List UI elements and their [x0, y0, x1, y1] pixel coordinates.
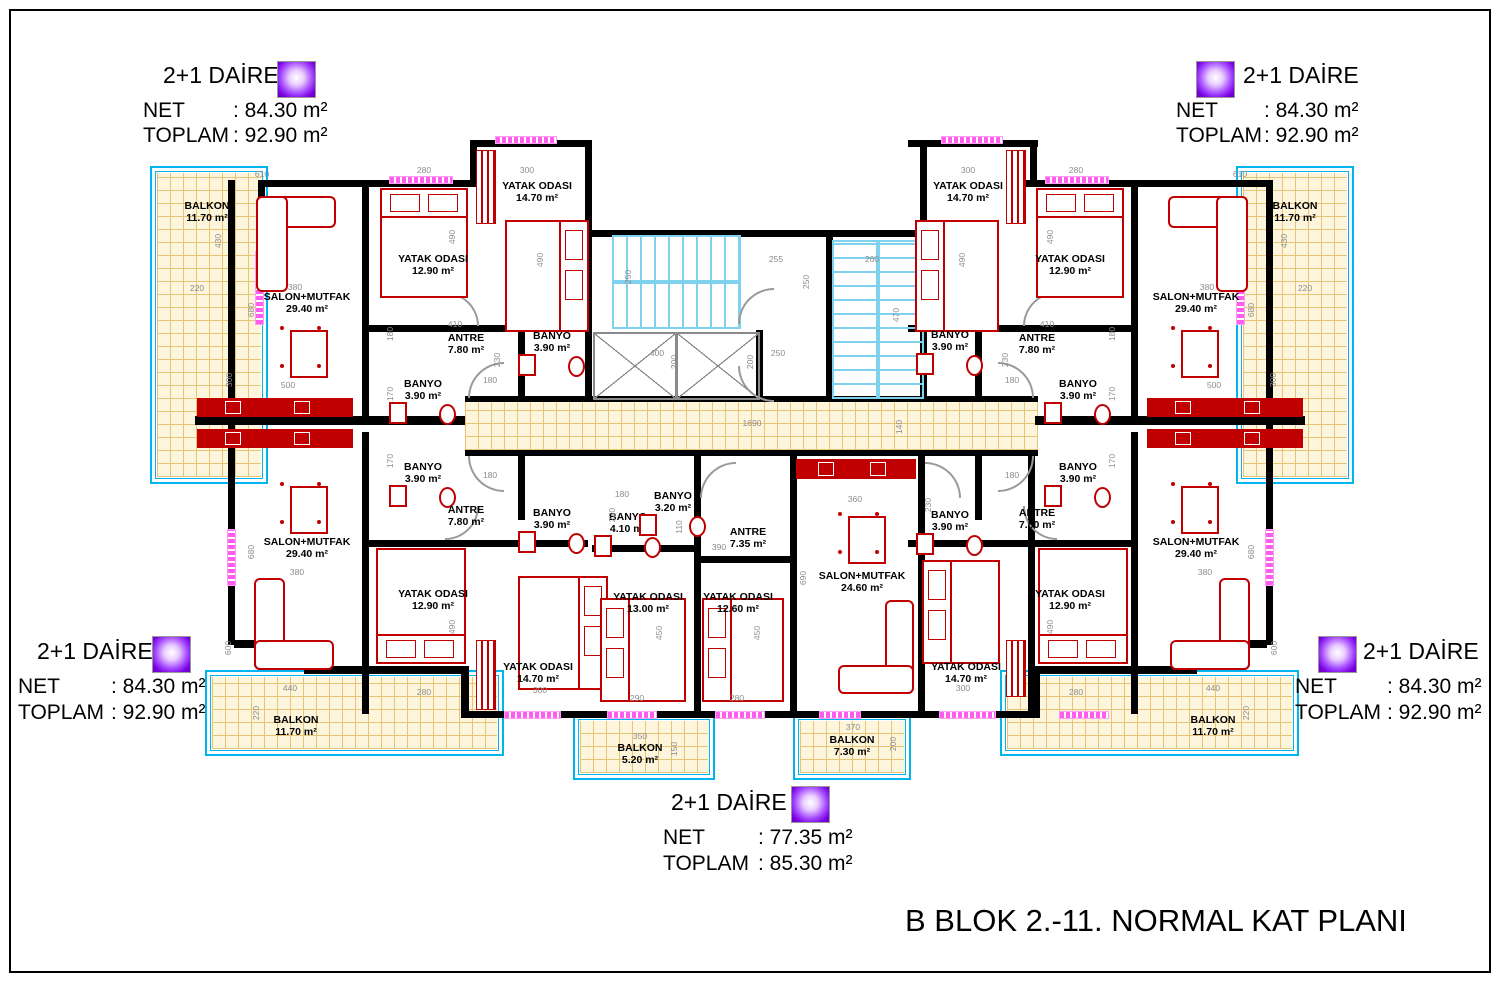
bed-line	[378, 634, 464, 636]
stove-icon	[225, 401, 241, 414]
dimension-label: 260	[865, 254, 879, 264]
wall	[1035, 416, 1305, 425]
room-name: YATAK ODASI	[1035, 253, 1105, 265]
room-name: BALKON	[1191, 714, 1236, 726]
sink-icon	[294, 432, 310, 445]
dimension-label: 680	[1246, 303, 1256, 317]
dimension-label: 230	[607, 508, 617, 522]
room-label: YATAK ODASI13.00 m²	[613, 591, 683, 615]
room-area: 7.35 m²	[730, 538, 766, 550]
room-name: YATAK ODASI	[503, 661, 573, 673]
apartment-type: 2+1 DAİRE	[163, 62, 279, 89]
room-area: 7.80 m²	[448, 516, 484, 528]
wall	[1131, 432, 1138, 714]
chair	[1208, 520, 1212, 524]
plan-title: B BLOK 2.-11. NORMAL KAT PLANI	[905, 903, 1410, 939]
room-name: ANTRE	[1019, 507, 1055, 519]
pillow	[1046, 194, 1076, 212]
dimension-label: 350	[633, 731, 647, 741]
dimension-label: 250	[623, 270, 633, 284]
dimension-label: 220	[251, 706, 261, 720]
room-area: 7.80 m²	[1019, 344, 1055, 356]
room-area: 3.90 m²	[1059, 390, 1097, 402]
room-label: BANYO3.20 m²	[654, 490, 692, 514]
window	[1060, 712, 1108, 718]
dimension-label: 180	[483, 375, 497, 385]
washbasin-icon	[1044, 485, 1062, 507]
net-label: NET	[1176, 99, 1264, 123]
kitchen-counter	[1147, 398, 1303, 417]
room-name: BANYO	[1059, 461, 1097, 473]
dimension-label: 180	[615, 489, 629, 499]
bed-line	[559, 222, 561, 330]
dimension-label: 230	[1000, 353, 1010, 367]
room-label: SALON+MUTFAK29.40 m²	[264, 291, 351, 315]
room-name: SALON+MUTFAK	[819, 570, 906, 582]
room-label: YATAK ODASI14.70 m²	[931, 661, 1001, 685]
room-label: ANTRE7.35 m²	[730, 526, 766, 550]
room-label: YATAK ODASI14.70 m²	[503, 661, 573, 685]
wall	[362, 540, 588, 547]
net-label: NET	[143, 99, 233, 123]
room-name: BANYO	[654, 490, 692, 502]
room-area: 12.90 m²	[1035, 265, 1105, 277]
bed-line	[1040, 634, 1126, 636]
stair-rail	[876, 242, 880, 397]
toilet-icon	[966, 535, 983, 556]
room-name: YATAK ODASI	[613, 591, 683, 603]
net-value: : 84.30 m²	[233, 99, 328, 123]
room-label: BALKON11.70 m²	[274, 714, 319, 738]
dimension-label: 200	[888, 737, 898, 751]
room-name: YATAK ODASI	[398, 253, 468, 265]
dimension-label: 610	[255, 169, 269, 179]
balcony-bottom-right	[1000, 670, 1299, 756]
wardrobe	[476, 640, 496, 710]
room-label: YATAK ODASI12.90 m²	[1035, 588, 1105, 612]
room-area: 11.70 m²	[1191, 726, 1236, 738]
stove-icon	[1175, 432, 1191, 445]
dimension-label: 170	[1107, 454, 1117, 468]
window	[1046, 177, 1108, 183]
stove-icon	[818, 462, 834, 476]
pillow	[386, 640, 416, 658]
room-area: 12.90 m²	[398, 600, 468, 612]
net-value: : 84.30 m²	[1264, 99, 1359, 123]
chair	[1171, 482, 1175, 486]
dimension-label: 470	[891, 308, 901, 322]
room-name: BANYO	[931, 329, 969, 341]
chair	[838, 550, 842, 554]
door-swing-arc	[700, 462, 736, 498]
pillow	[921, 230, 939, 260]
dimension-label: 500	[1207, 380, 1221, 390]
apartment-type-swatch-icon	[277, 61, 316, 98]
dimension-label: 390	[712, 542, 726, 552]
room-name: YATAK ODASI	[933, 180, 1003, 192]
room-name: BANYO	[404, 461, 442, 473]
dimension-label: 600	[223, 641, 233, 655]
dimension-label: 180	[1005, 375, 1019, 385]
sofa	[838, 665, 914, 694]
kitchen-counter	[197, 429, 353, 448]
pillow	[1084, 194, 1114, 212]
room-label: YATAK ODASI14.70 m²	[502, 180, 572, 204]
dimension-label: 220	[1298, 283, 1312, 293]
net-label: NET	[18, 675, 111, 699]
chair	[1208, 364, 1212, 368]
room-label: YATAK ODASI12.60 m²	[703, 591, 773, 615]
chair	[317, 520, 321, 524]
chair	[317, 364, 321, 368]
sofa	[256, 196, 288, 292]
sink-icon	[870, 462, 886, 476]
net-value: : 84.30 m²	[1387, 675, 1482, 699]
toplam-label: TOPLAM	[1295, 701, 1387, 725]
wardrobe	[1006, 640, 1026, 697]
kitchen-counter	[796, 459, 916, 479]
dimension-label: 180	[1005, 470, 1019, 480]
dining-table	[848, 516, 886, 564]
room-name: BALKON	[618, 742, 663, 754]
door-swing-arc	[925, 462, 961, 498]
room-area: 14.70 m²	[503, 673, 573, 685]
chair	[280, 482, 284, 486]
window	[940, 712, 995, 718]
toplam-label: TOPLAM	[18, 701, 111, 725]
dimension-label: 150	[669, 742, 679, 756]
room-label: YATAK ODASI12.90 m²	[398, 253, 468, 277]
room-name: BANYO	[404, 378, 442, 390]
room-name: BANYO	[533, 330, 571, 342]
chair	[1171, 520, 1175, 524]
chair	[1208, 326, 1212, 330]
room-area: 3.90 m²	[533, 519, 571, 531]
wardrobe	[476, 150, 496, 224]
room-label: BANYO3.90 m²	[1059, 461, 1097, 485]
double-bed	[915, 220, 999, 332]
net-value: : 84.30 m²	[111, 675, 206, 699]
pillow	[606, 648, 624, 678]
toplam-value: : 92.90 m²	[1264, 124, 1359, 148]
room-name: BALKON	[830, 734, 875, 746]
dimension-label: 300	[1268, 373, 1278, 387]
room-area: 11.70 m²	[185, 212, 230, 224]
double-bed	[505, 220, 589, 332]
chair	[1171, 326, 1175, 330]
dining-table	[1181, 486, 1219, 534]
room-label: BANYO3.90 m²	[404, 378, 442, 402]
washbasin-icon	[518, 531, 536, 553]
dimension-label: 410	[1040, 319, 1054, 329]
dining-table	[290, 330, 328, 378]
wall	[518, 450, 525, 520]
toilet-icon	[644, 537, 661, 558]
dimension-label: 280	[1069, 687, 1083, 697]
room-area: 3.90 m²	[1059, 473, 1097, 485]
bed-line	[943, 222, 945, 330]
room-name: BALKON	[1273, 200, 1318, 212]
chair	[875, 512, 879, 516]
wall	[908, 540, 1138, 547]
pillow	[424, 640, 454, 658]
room-label: SALON+MUTFAK29.40 m²	[1153, 291, 1240, 315]
wall	[195, 416, 465, 425]
chair	[280, 326, 284, 330]
room-label: BANYO3.90 m²	[404, 461, 442, 485]
room-label: BANYO3.90 m²	[533, 330, 571, 354]
sink-icon	[294, 401, 310, 414]
room-name: BALKON	[274, 714, 319, 726]
toplam-value: : 92.90 m²	[111, 701, 206, 725]
room-area: 3.20 m²	[654, 502, 692, 514]
chair	[280, 520, 284, 524]
room-name: SALON+MUTFAK	[264, 536, 351, 548]
room-area: 13.00 m²	[613, 603, 683, 615]
dining-table	[1181, 330, 1219, 378]
bed-line	[382, 216, 466, 218]
apartment-type-swatch-icon	[1196, 61, 1235, 98]
room-name: BANYO	[931, 509, 969, 521]
apartment-type-swatch-icon	[791, 786, 830, 823]
room-area: 7.80 m²	[1019, 519, 1055, 531]
toilet-icon	[568, 356, 585, 377]
room-label: BALKON11.70 m²	[185, 200, 230, 224]
dimension-label: 300	[224, 373, 234, 387]
kitchen-counter	[197, 398, 353, 417]
room-label: ANTRE7.80 m²	[448, 504, 484, 528]
dining-table	[290, 486, 328, 534]
dimension-label: 380	[1200, 282, 1214, 292]
toilet-icon	[1094, 487, 1111, 508]
room-area: 7.30 m²	[830, 746, 875, 758]
dimension-label: 430	[213, 234, 223, 248]
chair	[317, 326, 321, 330]
dimension-label: 490	[957, 253, 967, 267]
room-label: SALON+MUTFAK29.40 m²	[264, 536, 351, 560]
chair	[280, 364, 284, 368]
room-label: SALON+MUTFAK24.60 m²	[819, 570, 906, 594]
room-area: 3.90 m²	[404, 473, 442, 485]
dimension-label: 690	[798, 571, 808, 585]
room-area: 29.40 m²	[1153, 303, 1240, 315]
pillow	[1086, 640, 1116, 658]
room-label: SALON+MUTFAK29.40 m²	[1153, 536, 1240, 560]
dimension-label: 230	[923, 498, 933, 512]
room-label: BALKON11.70 m²	[1191, 714, 1236, 738]
apartment-type: 2+1 DAİRE	[1243, 62, 1359, 89]
kitchen-counter	[1147, 429, 1303, 448]
dimension-label: 170	[385, 387, 395, 401]
room-name: YATAK ODASI	[502, 180, 572, 192]
dimension-label: 300	[520, 165, 534, 175]
window	[390, 177, 452, 183]
pillow	[1048, 640, 1078, 658]
room-name: SALON+MUTFAK	[1153, 291, 1240, 303]
floor-plan-sheet: BALKON11.70 m²SALON+MUTFAK29.40 m²YATAK …	[0, 0, 1500, 982]
room-label: BANYO3.90 m²	[931, 509, 969, 533]
dimension-label: 180	[385, 327, 395, 341]
dimension-label: 490	[535, 253, 545, 267]
dimension-label: 680	[246, 303, 256, 317]
window	[608, 712, 656, 718]
dimension-label: 140	[894, 420, 904, 434]
dimension-label: 500	[281, 380, 295, 390]
chair	[1171, 364, 1175, 368]
dimension-label: 610	[1233, 169, 1247, 179]
pillow	[928, 610, 946, 640]
apartment-type: 2+1 DAİRE	[37, 638, 153, 665]
room-name: SALON+MUTFAK	[264, 291, 351, 303]
dimension-label: 250	[771, 348, 785, 358]
window	[505, 712, 560, 718]
dimension-label: 255	[769, 254, 783, 264]
room-name: YATAK ODASI	[1035, 588, 1105, 600]
dimension-label: 380	[288, 282, 302, 292]
toilet-icon	[689, 516, 706, 537]
room-area: 12.90 m²	[398, 265, 468, 277]
dimension-label: 200	[669, 355, 679, 369]
dimension-label: 280	[417, 165, 431, 175]
wall	[1131, 183, 1138, 423]
net-label: NET	[1295, 675, 1387, 699]
dimension-label: 170	[1107, 387, 1117, 401]
dimension-label: 230	[492, 353, 502, 367]
room-area: 7.80 m²	[448, 344, 484, 356]
wall	[1028, 455, 1035, 711]
wall	[975, 450, 982, 520]
chair	[838, 512, 842, 516]
dimension-label: 450	[752, 626, 762, 640]
washbasin-icon	[389, 485, 407, 507]
apartment-type: 2+1 DAİRE	[671, 789, 787, 816]
sofa	[254, 640, 334, 670]
net-value: : 77.35 m²	[758, 826, 853, 850]
dimension-label: 360	[848, 494, 862, 504]
dimension-label: 680	[246, 545, 256, 559]
chair	[1208, 482, 1212, 486]
room-label: ANTRE7.80 m²	[1019, 507, 1055, 531]
sofa	[1216, 196, 1248, 292]
dimension-label: 450	[654, 626, 664, 640]
room-label: ANTRE7.80 m²	[448, 332, 484, 356]
window	[820, 712, 860, 718]
room-name: BANYO	[1059, 378, 1097, 390]
dimension-label: 220	[1241, 706, 1251, 720]
room-area: 14.70 m²	[933, 192, 1003, 204]
dimension-label: 410	[448, 319, 462, 329]
room-area: 12.90 m²	[1035, 600, 1105, 612]
toilet-icon	[1094, 404, 1111, 425]
pillow	[390, 194, 420, 212]
dimension-label: 490	[1045, 230, 1055, 244]
dimension-label: 490	[1045, 620, 1055, 634]
window	[1266, 530, 1273, 585]
dimension-label: 110	[674, 520, 684, 534]
dimension-label: 180	[1107, 327, 1117, 341]
room-label: YATAK ODASI12.90 m²	[398, 588, 468, 612]
room-label: YATAK ODASI14.70 m²	[933, 180, 1003, 204]
wall	[362, 432, 369, 714]
wall	[465, 450, 1038, 456]
washbasin-icon	[594, 535, 612, 557]
pillow	[928, 570, 946, 600]
pillow	[428, 194, 458, 212]
toplam-label: TOPLAM	[1176, 124, 1264, 148]
dimension-label: 440	[1206, 683, 1220, 693]
room-area: 14.70 m²	[502, 192, 572, 204]
stove-icon	[1175, 401, 1191, 414]
dimension-label: 220	[190, 283, 204, 293]
room-area: 24.60 m²	[819, 582, 906, 594]
room-name: YATAK ODASI	[398, 588, 468, 600]
room-area: 5.20 m²	[618, 754, 663, 766]
room-label: ANTRE7.80 m²	[1019, 332, 1055, 356]
room-name: BALKON	[185, 200, 230, 212]
pillow	[565, 230, 583, 260]
room-label: BALKON11.70 m²	[1273, 200, 1318, 224]
room-name: YATAK ODASI	[703, 591, 773, 603]
toilet-icon	[966, 355, 983, 376]
stove-icon	[225, 432, 241, 445]
dimension-label: 680	[1246, 545, 1256, 559]
window	[942, 137, 1002, 143]
room-area: 29.40 m²	[1153, 548, 1240, 560]
dimension-label: 280	[730, 693, 744, 703]
washbasin-icon	[916, 353, 934, 375]
room-label: BANYO3.90 m²	[931, 329, 969, 353]
window	[716, 712, 764, 718]
room-area: 29.40 m²	[264, 548, 351, 560]
dimension-label: 300	[961, 165, 975, 175]
dimension-label: 280	[1069, 165, 1083, 175]
door-swing-arc	[738, 288, 774, 324]
dimension-label: 300	[956, 683, 970, 693]
balcony-bottom-left	[205, 670, 504, 756]
pillow	[708, 648, 726, 678]
washbasin-icon	[639, 514, 657, 536]
pillow	[921, 270, 939, 300]
room-name: ANTRE	[730, 526, 766, 538]
bed-line	[1038, 216, 1122, 218]
sink-icon	[1244, 432, 1260, 445]
wardrobe	[1006, 150, 1026, 224]
toplam-label: TOPLAM	[663, 852, 758, 876]
room-area: 12.60 m²	[703, 603, 773, 615]
washbasin-icon	[1044, 402, 1062, 424]
washbasin-icon	[389, 402, 407, 424]
apartment-type-swatch-icon	[152, 636, 191, 673]
toplam-value: : 85.30 m²	[758, 852, 853, 876]
room-name: ANTRE	[1019, 332, 1055, 344]
toplam-value: : 92.90 m²	[1387, 701, 1482, 725]
room-name: SALON+MUTFAK	[1153, 536, 1240, 548]
washbasin-icon	[916, 533, 934, 555]
room-name: ANTRE	[448, 504, 484, 516]
wall	[461, 666, 469, 716]
wall	[790, 455, 797, 711]
sofa	[1170, 640, 1250, 670]
dimension-label: 250	[801, 275, 811, 289]
room-label: BALKON7.30 m²	[830, 734, 875, 758]
pillow	[565, 270, 583, 300]
room-name: ANTRE	[448, 332, 484, 344]
window	[228, 530, 235, 585]
toilet-icon	[439, 404, 456, 425]
room-area: 29.40 m²	[264, 303, 351, 315]
elevator-shaft-left	[593, 332, 677, 400]
room-area: 3.90 m²	[404, 390, 442, 402]
